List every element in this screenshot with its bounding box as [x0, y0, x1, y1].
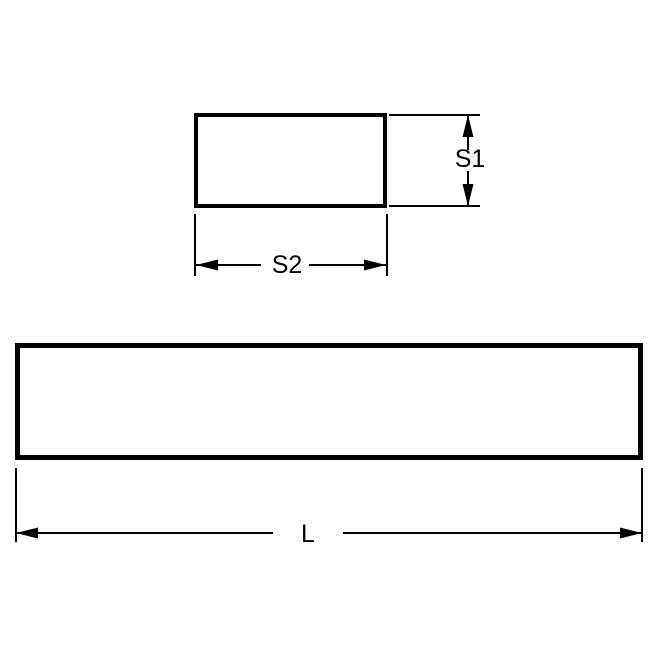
s2-dimension-label: S2: [272, 251, 303, 279]
s1-arrowhead-up: [463, 115, 474, 137]
side-view: L: [16, 346, 642, 549]
dimension-drawing: S1 S2 L: [0, 0, 670, 670]
cross-section-view: S1 S2: [195, 115, 485, 279]
s1-arrowhead-down: [463, 184, 474, 206]
cross-section-rectangle: [196, 115, 385, 206]
s2-arrowhead-left: [196, 260, 218, 271]
l-arrowhead-left: [16, 528, 38, 539]
l-arrowhead-right: [620, 528, 642, 539]
bar-rectangle: [18, 346, 641, 458]
s2-arrowhead-right: [364, 260, 386, 271]
s1-dimension-label: S1: [455, 145, 486, 173]
l-dimension-label: L: [301, 520, 315, 548]
